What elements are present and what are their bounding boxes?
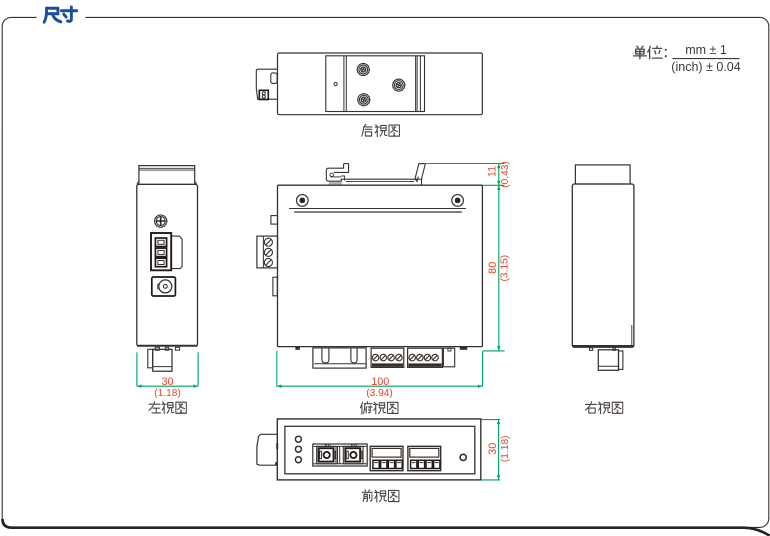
- svg-text:mm ± 1: mm ± 1: [685, 43, 727, 57]
- svg-text:100: 100: [371, 376, 389, 388]
- svg-text:30: 30: [161, 376, 173, 388]
- svg-text:30: 30: [487, 443, 499, 455]
- svg-text:(1.18): (1.18): [500, 435, 511, 462]
- svg-text:(3.94): (3.94): [366, 388, 393, 399]
- svg-text:80: 80: [487, 262, 499, 274]
- svg-text:11: 11: [487, 166, 499, 177]
- svg-text:(inch) ± 0.04: (inch) ± 0.04: [671, 60, 740, 74]
- svg-text:(1.18): (1.18): [154, 388, 181, 399]
- svg-text:(3.15): (3.15): [500, 255, 511, 282]
- svg-text:(0.43): (0.43): [500, 161, 511, 188]
